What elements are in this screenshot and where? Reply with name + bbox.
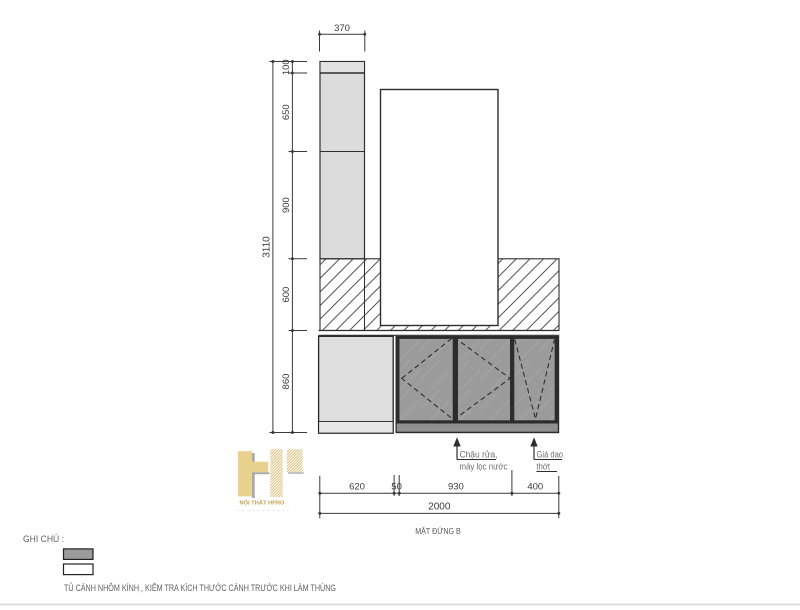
- svg-text:900: 900: [281, 197, 292, 213]
- svg-text:NỘI THẤT HPRO: NỘI THẤT HPRO: [240, 499, 285, 507]
- svg-text:100: 100: [281, 59, 292, 75]
- svg-text:MẶT ĐỨNG B: MẶT ĐỨNG B: [415, 526, 461, 536]
- svg-text:2000: 2000: [428, 502, 451, 513]
- svg-text:3110: 3110: [262, 236, 273, 258]
- svg-text:370: 370: [334, 23, 350, 34]
- svg-text:máy lọc nước: máy lọc nước: [460, 462, 508, 472]
- svg-text:400: 400: [527, 482, 543, 493]
- svg-text:Giá dao: Giá dao: [537, 450, 564, 460]
- svg-text:50: 50: [391, 482, 402, 493]
- svg-text:860: 860: [281, 374, 292, 390]
- svg-text:GHI CHÚ :: GHI CHÚ :: [23, 534, 64, 544]
- svg-text:Chậu rửa,: Chậu rửa,: [460, 450, 498, 460]
- svg-text:650: 650: [281, 104, 292, 120]
- svg-text:620: 620: [349, 482, 365, 493]
- svg-text:600: 600: [281, 287, 292, 303]
- svg-text:930: 930: [448, 482, 464, 493]
- svg-text:thớt: thớt: [537, 462, 551, 472]
- svg-text:TỦ CÁNH NHÔM KÍNH , KIỂM TRA K: TỦ CÁNH NHÔM KÍNH , KIỂM TRA KÍCH THƯỚC …: [64, 582, 336, 593]
